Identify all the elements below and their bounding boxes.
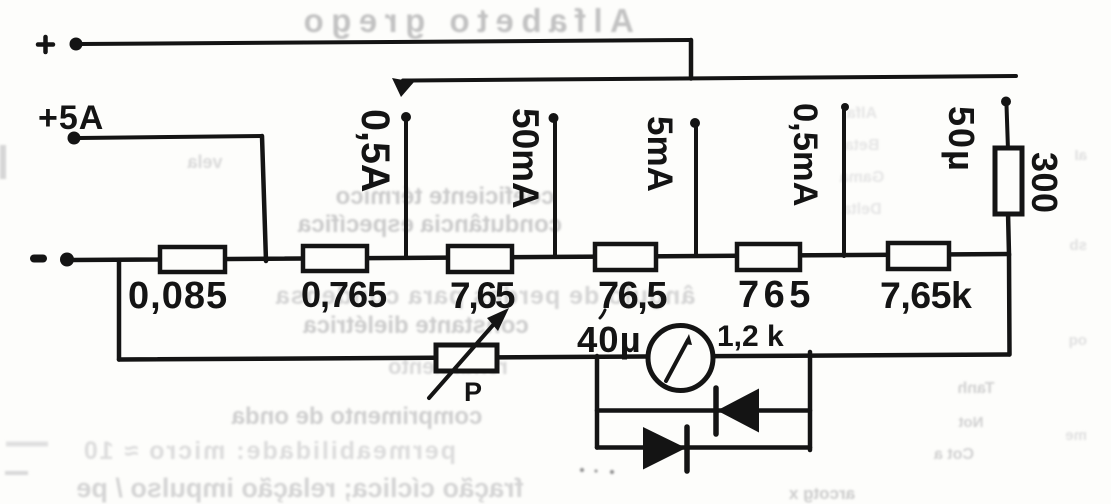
svg-text:0,5A: 0,5A xyxy=(353,109,397,192)
svg-text:Beta: Beta xyxy=(845,137,880,154)
svg-text:Delta: Delta xyxy=(842,201,881,218)
svg-text:0,5mA: 0,5mA xyxy=(786,103,824,207)
svg-text:Not: Not xyxy=(959,414,984,431)
svg-text:P: P xyxy=(464,377,482,407)
svg-text:0,085: 0,085 xyxy=(128,275,228,317)
svg-text:me: me xyxy=(1065,427,1087,444)
svg-text:permeabilidade: micro ≈ 10: permeabilidade: micro ≈ 10 xyxy=(82,437,456,465)
svg-text:Gama: Gama xyxy=(840,169,885,186)
svg-text:0,765: 0,765 xyxy=(301,274,387,315)
svg-text:fração cíclica; relação impuls: fração cíclica; relação impulso / pe xyxy=(76,473,523,503)
svg-text:40µ: 40µ xyxy=(577,319,642,360)
svg-text:vela: vela xyxy=(187,152,223,172)
svg-text:condutância específica: condutância específica xyxy=(297,211,562,238)
svg-text:7,65k: 7,65k xyxy=(880,274,972,316)
svg-text:76,5: 76,5 xyxy=(598,275,667,317)
svg-text:50mA: 50mA xyxy=(505,108,546,209)
svg-text:Alfabeto grego: Alfabeto grego xyxy=(296,2,634,39)
svg-text:+5A: +5A xyxy=(38,99,104,137)
svg-text:5mA: 5mA xyxy=(640,116,679,192)
svg-text:oq: oq xyxy=(1069,332,1087,349)
svg-text:Tanh: Tanh xyxy=(957,380,994,397)
svg-text:1,2 k: 1,2 k xyxy=(717,320,784,353)
svg-text:765: 765 xyxy=(738,274,815,316)
svg-text:Alfa: Alfa xyxy=(847,105,877,122)
svg-text:50µ: 50µ xyxy=(941,106,982,173)
svg-text:aI: aI xyxy=(1074,147,1087,164)
svg-text:arcotg x: arcotg x xyxy=(788,484,855,503)
svg-text:7,65: 7,65 xyxy=(450,275,515,316)
svg-text:Cot a: Cot a xyxy=(934,446,974,463)
svg-text:300: 300 xyxy=(1024,152,1065,214)
svg-text:comprimento de onda: comprimento de onda xyxy=(231,403,482,430)
svg-text:sb: sb xyxy=(1069,237,1087,254)
